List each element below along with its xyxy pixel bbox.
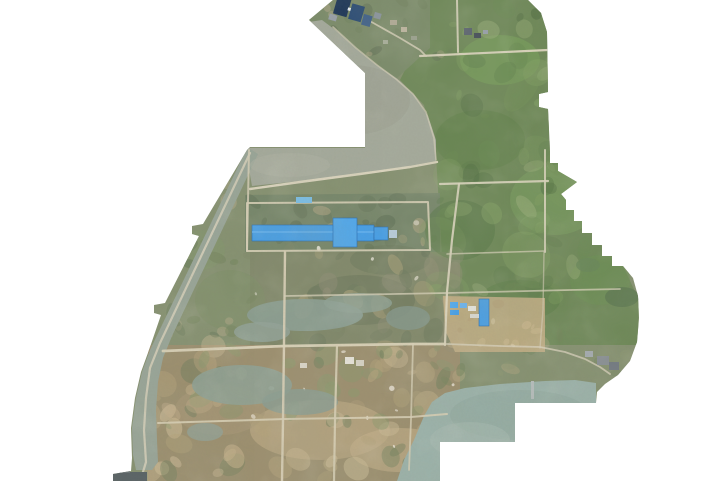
texture-left-band (171, 252, 182, 263)
veg-texture-north (547, 13, 578, 41)
texture-left-band (167, 223, 175, 228)
texture-left-band (199, 153, 219, 174)
texture-left-band (157, 162, 182, 186)
veg-texture-north (613, 240, 634, 264)
veg-texture-north (614, 189, 629, 204)
meadow-soft-north (551, 22, 605, 59)
veg-texture-north (559, 45, 577, 64)
veg-texture-north (604, 85, 627, 110)
veg-texture-north (604, 217, 631, 244)
aerial-orthophoto-canvas (0, 0, 723, 481)
texture-left-band (172, 241, 177, 248)
texture-top-strip (318, 53, 327, 64)
east-bldg-3 (569, 137, 577, 142)
meadow-soft-north (592, 153, 632, 192)
meadow-soft-north (566, 160, 634, 229)
veg-texture-north (558, 127, 576, 146)
map-layers (0, 0, 723, 481)
east-bldg-2 (576, 132, 585, 138)
veg-texture-north (585, 17, 603, 31)
meadow-soft-north (583, 186, 608, 219)
texture-left-band (178, 208, 195, 226)
veg-texture-north (592, 193, 609, 212)
texture-left-band (186, 176, 202, 188)
veg-texture-north (606, 131, 632, 163)
orthophoto-image (0, 0, 723, 481)
veg-texture-north (555, 77, 586, 110)
veg-texture-north (561, 53, 581, 75)
east-bldg-1 (565, 128, 575, 135)
veg-texture-north (602, 136, 625, 160)
grain-noise-overlay (0, 0, 723, 481)
texture-left-band (177, 167, 201, 192)
veg-texture-north (595, 28, 606, 39)
veg-texture-north (560, 70, 579, 87)
veg-texture-north (609, 204, 625, 218)
texture-left-band (184, 170, 197, 189)
veg-texture-north (597, 133, 616, 149)
